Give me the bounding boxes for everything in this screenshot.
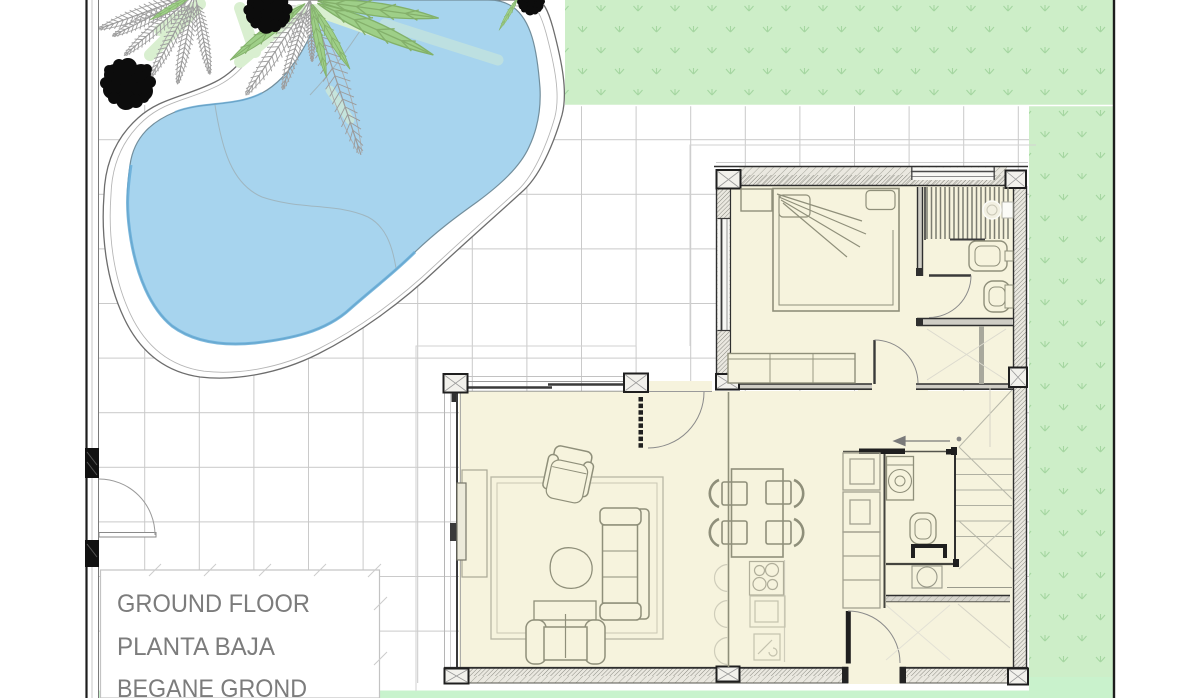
svg-text:BEGANE GROND: BEGANE GROND bbox=[117, 675, 307, 698]
svg-text:GROUND FLOOR: GROUND FLOOR bbox=[117, 590, 310, 618]
svg-text:PLANTA BAJA: PLANTA BAJA bbox=[117, 633, 275, 661]
